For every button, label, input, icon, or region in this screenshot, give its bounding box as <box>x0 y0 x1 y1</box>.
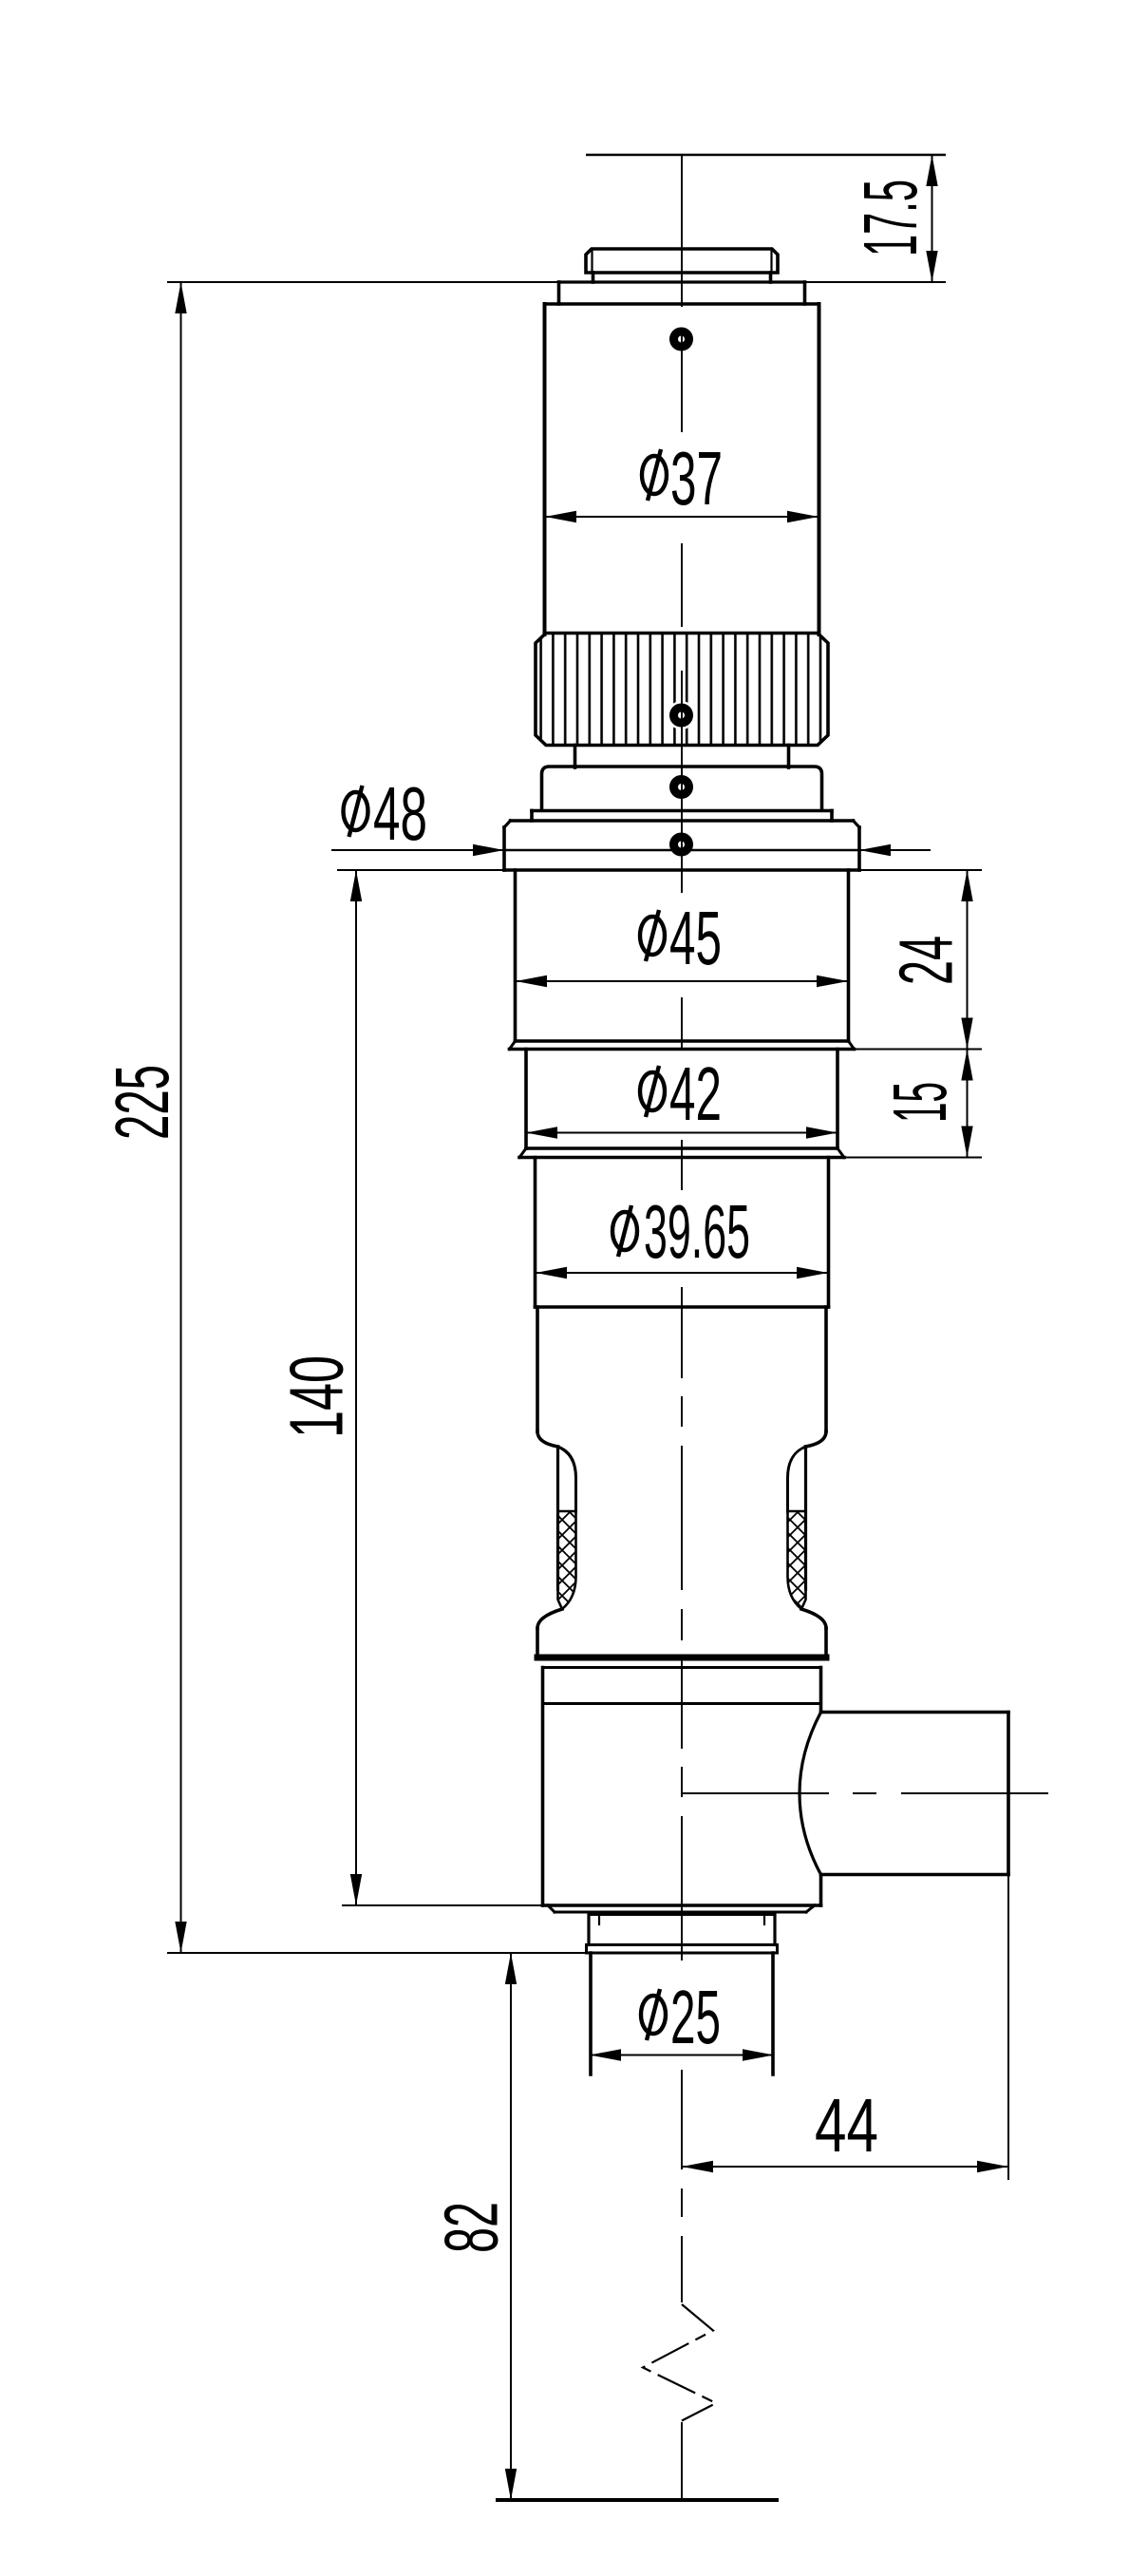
svg-text:140: 140 <box>274 1355 359 1438</box>
svg-text:37: 37 <box>670 436 723 521</box>
svg-text:42: 42 <box>669 1051 722 1136</box>
svg-text:44: 44 <box>815 2083 878 2168</box>
svg-text:225: 225 <box>100 1065 184 1140</box>
svg-text:39.65: 39.65 <box>644 1189 750 1274</box>
svg-text:25: 25 <box>670 1975 721 2059</box>
svg-text:24: 24 <box>884 936 969 985</box>
svg-text:15: 15 <box>877 1082 962 1123</box>
svg-text:17.5: 17.5 <box>848 180 932 256</box>
svg-text:82: 82 <box>429 2202 514 2253</box>
svg-text:45: 45 <box>669 896 722 980</box>
svg-text:48: 48 <box>373 771 427 856</box>
